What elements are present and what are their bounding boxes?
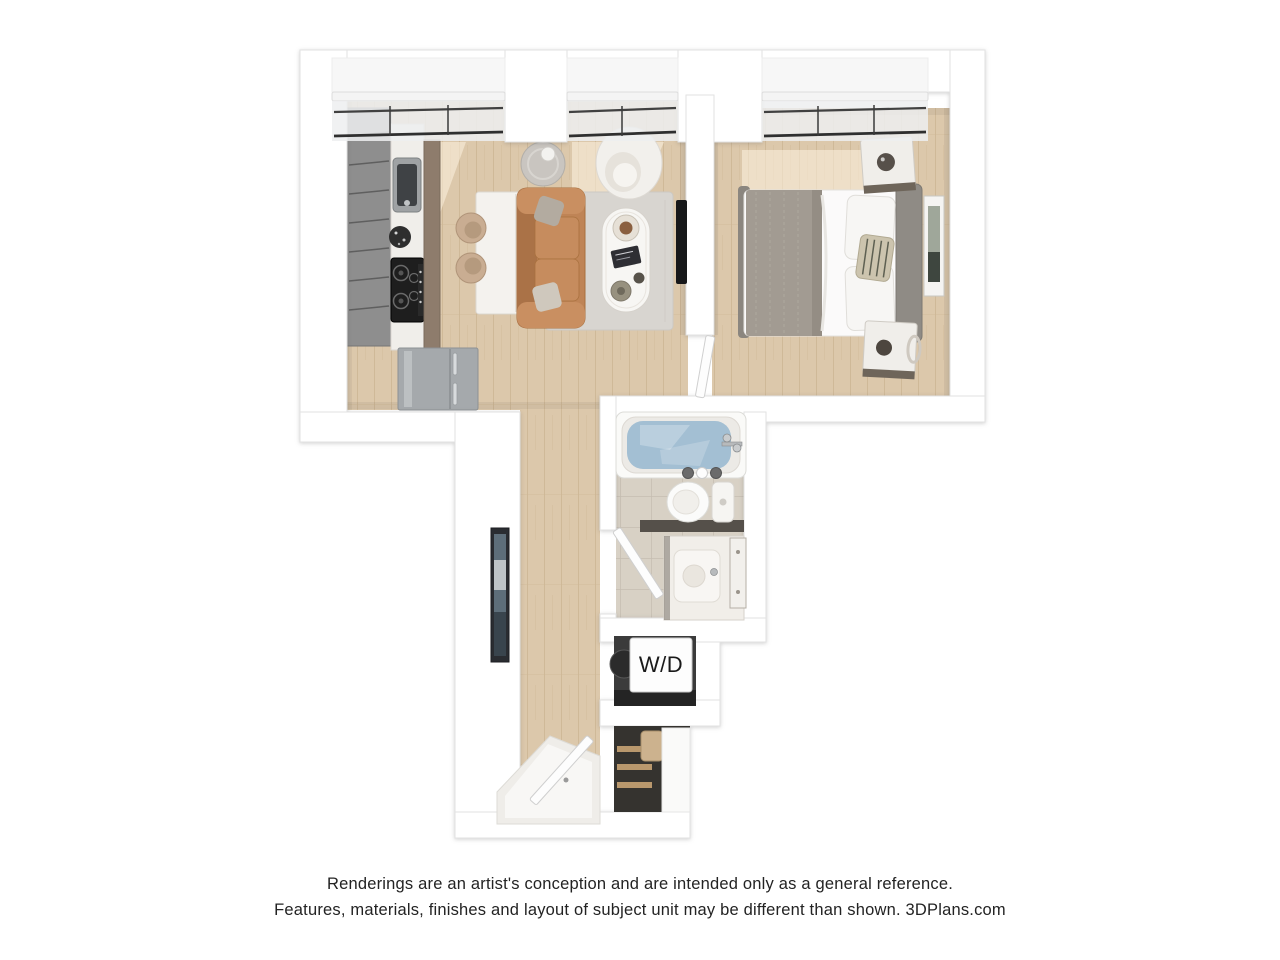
cooktop-icon xyxy=(391,258,424,322)
kitchen-island-icon xyxy=(476,192,522,314)
counter-decor-icon xyxy=(389,226,411,248)
floorplan-image: W/D Renderings are an artist's conceptio… xyxy=(0,0,1280,960)
window-icon xyxy=(762,58,928,141)
window-icon xyxy=(567,58,678,141)
bed-icon xyxy=(738,184,922,342)
closet xyxy=(614,726,690,812)
toilet-icon xyxy=(667,482,734,522)
coffee-table-icon xyxy=(602,208,650,312)
nightstand-icon xyxy=(862,321,921,380)
kitchen-sink-icon xyxy=(393,158,421,212)
bathtub-icon xyxy=(616,412,746,478)
garment-bag-icon xyxy=(641,731,663,761)
washer-dryer-closet: W/D xyxy=(610,636,696,706)
nightstand-icon xyxy=(860,136,916,193)
stool-icon xyxy=(456,253,486,283)
refrigerator-icon xyxy=(398,348,478,410)
disclaimer: Renderings are an artist's conception an… xyxy=(0,872,1280,923)
vanity-open-door xyxy=(730,538,746,608)
kitchen-cabinets-icon xyxy=(347,108,391,346)
stool-icon xyxy=(456,213,486,243)
floorplan-svg: W/D xyxy=(0,0,1280,960)
bedroom-art-icon xyxy=(924,196,944,296)
door-handle-icon xyxy=(564,778,569,783)
side-table-lamp-icon xyxy=(521,142,565,186)
disclaimer-line-1: Renderings are an artist's conception an… xyxy=(0,872,1280,898)
hallway-art-icon xyxy=(491,528,509,662)
vanity-sink-icon xyxy=(664,536,746,620)
tv-icon xyxy=(676,200,687,284)
cabinet-face xyxy=(424,140,440,348)
window-icon xyxy=(332,58,505,141)
wd-label: W/D xyxy=(639,652,683,677)
disclaimer-line-2: Features, materials, finishes and layout… xyxy=(0,898,1280,924)
windows xyxy=(332,58,928,141)
sofa-icon xyxy=(517,188,585,328)
towel-rolls-icon xyxy=(683,468,722,479)
